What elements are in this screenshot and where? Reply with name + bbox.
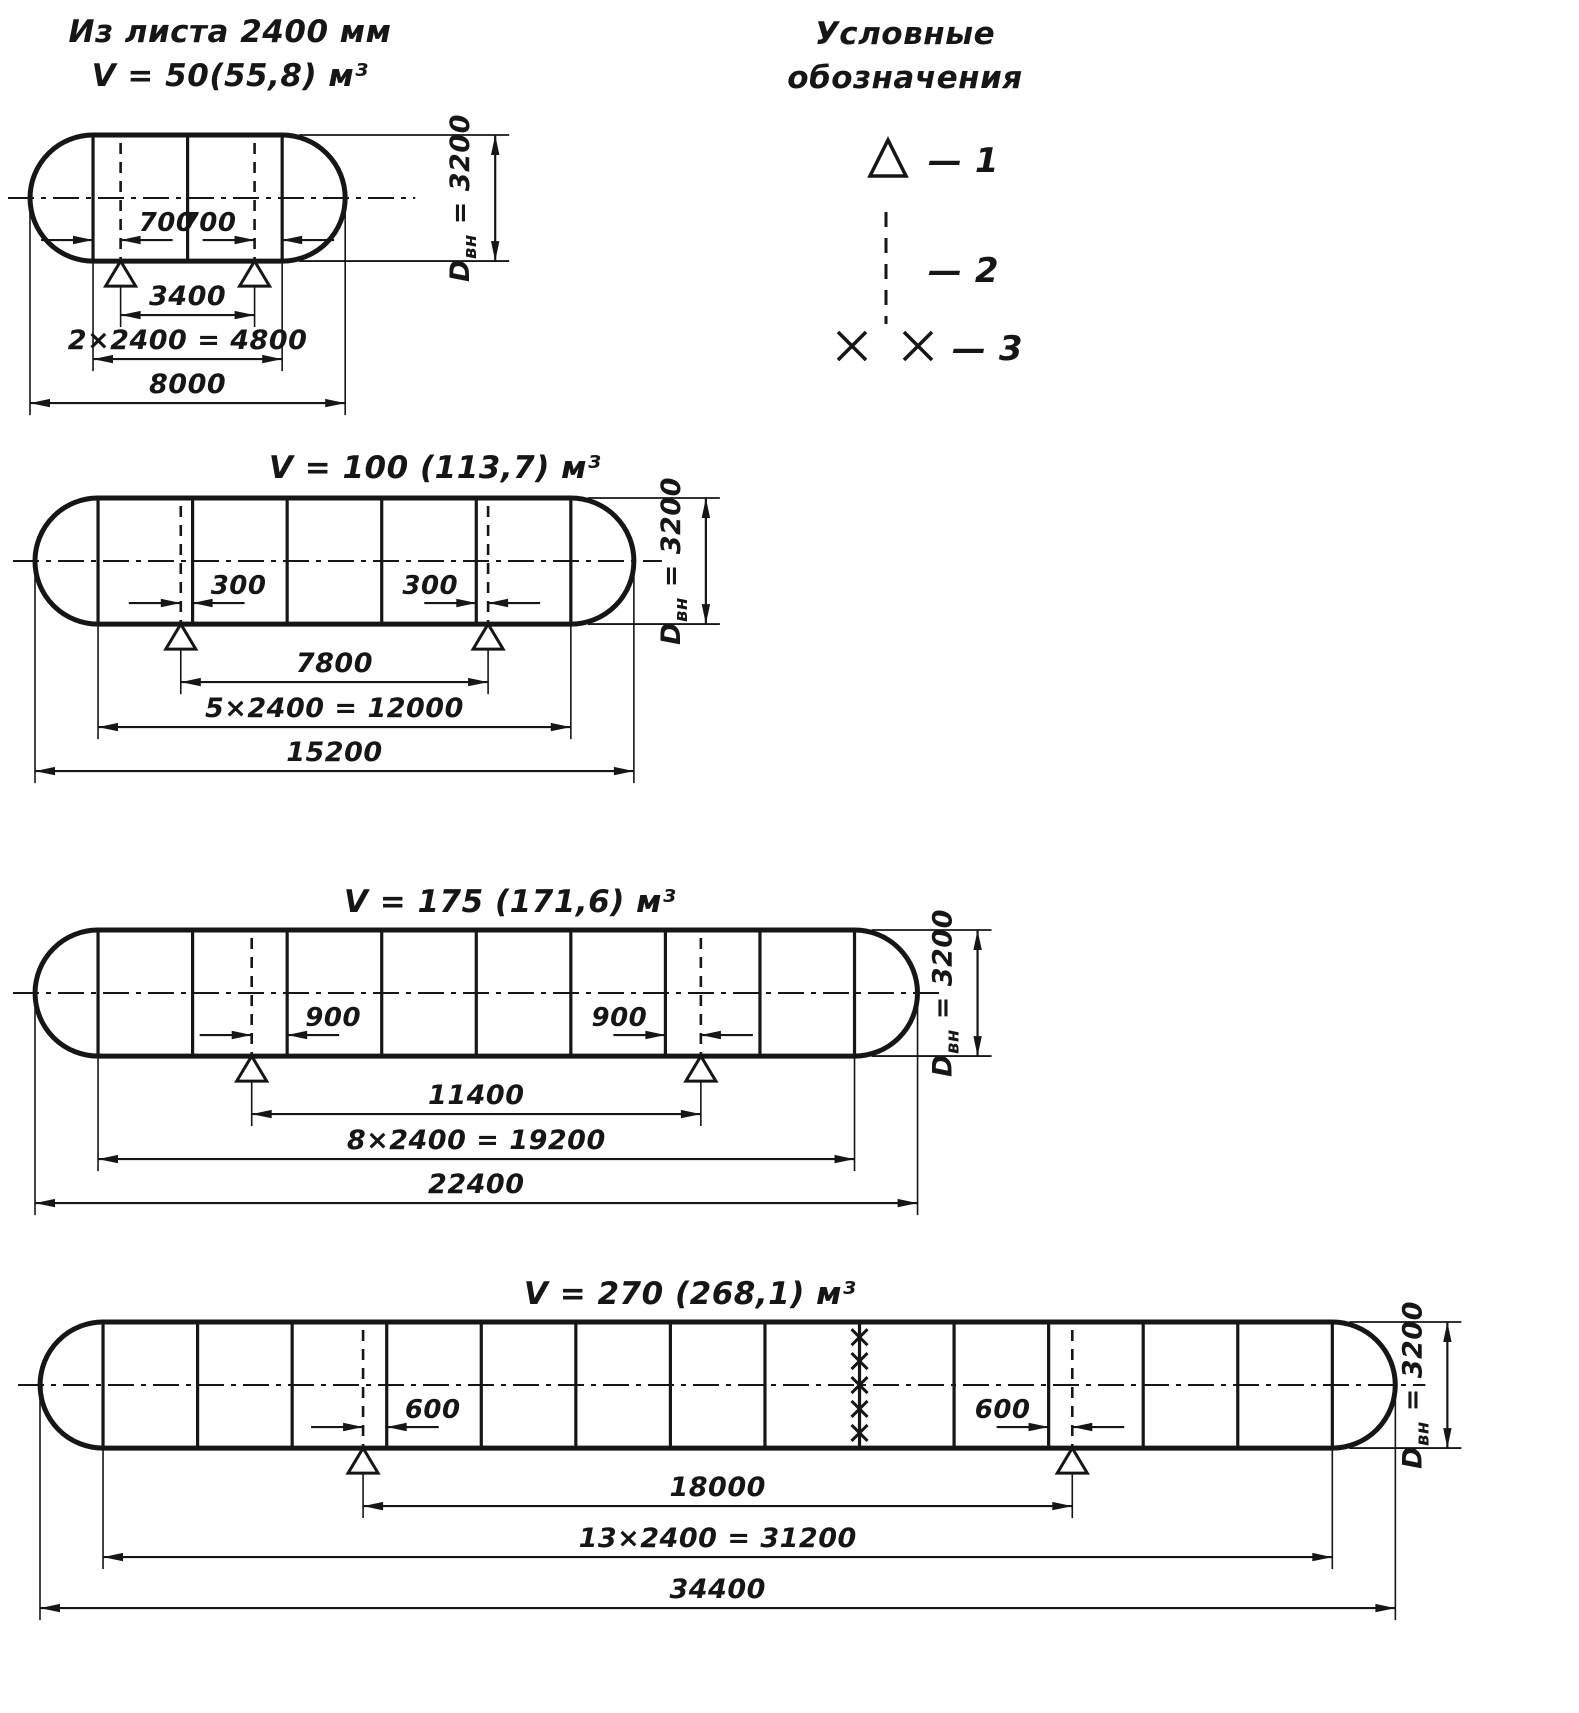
tank-title: V = 100 (113,7) м³: [269, 450, 601, 486]
diameter-label: Dвн = 3200: [445, 114, 481, 282]
dim-arrow: [252, 1110, 272, 1118]
support-triangle-icon: [473, 624, 503, 649]
dim-arrow: [702, 604, 710, 624]
dim-arrow: [701, 1031, 721, 1039]
dim-arrow: [1029, 1423, 1049, 1431]
dim-arrow: [35, 1199, 55, 1207]
dim-arrow: [1443, 1322, 1451, 1342]
legend: Условныеобозначения— 1— 2— 3: [787, 16, 1023, 369]
legend-item-1: — 1: [870, 140, 999, 181]
dim-arrow: [488, 599, 508, 607]
legend-item-3: — 3: [838, 329, 1023, 369]
dim-arrow: [1312, 1553, 1332, 1561]
dim-arrow: [98, 723, 118, 731]
dim-arrow: [73, 236, 93, 244]
dim-arrow: [161, 599, 181, 607]
dim-arrow: [973, 930, 981, 950]
support-triangle-icon: [1057, 1448, 1087, 1473]
dim-arrow: [491, 135, 499, 155]
offset-dim-label: 600: [975, 1395, 1031, 1425]
dim-arrow: [262, 355, 282, 363]
dim-arrow: [898, 1199, 918, 1207]
dim-arrow: [645, 1031, 665, 1039]
offset-dim-label: 900: [592, 1003, 648, 1033]
tank-1-drawing: Из листа 2400 ммV = 50(55,8) м³700700340…: [8, 14, 509, 415]
support-triangle-icon: [106, 261, 136, 286]
dim-arrow: [30, 399, 50, 407]
tank-title: V = 50(55,8) м³: [92, 58, 369, 94]
offset-dim-label: 300: [211, 571, 267, 601]
dim-arrow: [456, 599, 476, 607]
tank-title: V = 270 (268,1) м³: [524, 1276, 856, 1312]
legend-title: обозначения: [787, 60, 1022, 96]
technical-drawing-canvas: Условныеобозначения— 1— 2— 3Из листа 240…: [0, 0, 1579, 1713]
dim-arrow: [363, 1502, 383, 1510]
legend-item-label: — 3: [952, 329, 1023, 369]
tank-4-drawing: V = 270 (268,1) м³6006001800013×2400 = 3…: [18, 1276, 1461, 1620]
dim-arrow: [35, 767, 55, 775]
dim-arrow: [1375, 1604, 1395, 1612]
tank-3-drawing: V = 175 (171,6) м³900900114008×2400 = 19…: [13, 884, 992, 1215]
dim-arrow: [491, 241, 499, 261]
dim-arrow: [232, 1031, 252, 1039]
offset-dim-label: 300: [402, 571, 458, 601]
dim-arrow: [835, 1155, 855, 1163]
support-triangle-icon: [348, 1448, 378, 1473]
offset-dim-label: 900: [305, 1003, 361, 1033]
dim-arrow: [702, 498, 710, 518]
span-dim-label: 7800: [296, 648, 373, 679]
dim-arrow: [193, 599, 213, 607]
support-triangle-icon: [237, 1056, 267, 1081]
span-dim-label: 3400: [149, 281, 226, 312]
tank-title: Из листа 2400 мм: [69, 14, 392, 50]
total-dim-label: 22400: [428, 1169, 524, 1200]
dim-arrow: [235, 236, 255, 244]
shell-dim-label: 2×2400 = 4800: [68, 325, 308, 356]
dim-arrow: [973, 1036, 981, 1056]
diameter-label: Dвн = 3200: [656, 477, 692, 645]
shell-dim-label: 13×2400 = 31200: [579, 1523, 857, 1554]
total-dim-label: 8000: [149, 369, 226, 400]
support-triangle-icon: [870, 140, 906, 176]
legend-item-2: — 2: [886, 212, 999, 324]
dim-arrow: [40, 1604, 60, 1612]
tank-title: V = 175 (171,6) м³: [344, 884, 676, 920]
offset-dim-label: 700: [181, 208, 237, 238]
diameter-label: Dвн = 3200: [928, 909, 964, 1077]
dim-arrow: [614, 767, 634, 775]
dim-arrow: [551, 723, 571, 731]
dim-arrow: [181, 678, 201, 686]
total-dim-label: 15200: [286, 737, 382, 768]
dim-arrow: [343, 1423, 363, 1431]
support-triangle-icon: [166, 624, 196, 649]
dim-arrow: [681, 1110, 701, 1118]
offset-dim-label: 600: [405, 1395, 461, 1425]
dim-arrow: [121, 311, 141, 319]
legend-item-label: — 2: [928, 251, 999, 291]
dim-arrow: [235, 311, 255, 319]
dim-arrow: [1052, 1502, 1072, 1510]
span-dim-label: 11400: [428, 1080, 524, 1111]
drawing-page: Условныеобозначения— 1— 2— 3Из листа 240…: [0, 0, 1579, 1713]
dim-arrow: [103, 1553, 123, 1561]
dim-arrow: [287, 1031, 307, 1039]
legend-title: Условные: [815, 16, 995, 52]
shell-dim-label: 8×2400 = 19200: [347, 1125, 606, 1156]
dim-arrow: [468, 678, 488, 686]
diameter-label: Dвн = 3200: [1397, 1301, 1433, 1469]
dim-arrow: [93, 355, 113, 363]
dim-arrow: [121, 236, 141, 244]
dim-arrow: [387, 1423, 407, 1431]
legend-item-label: — 1: [928, 141, 999, 181]
dim-arrow: [1443, 1428, 1451, 1448]
tank-2-drawing: V = 100 (113,7) м³30030078005×2400 = 120…: [13, 450, 720, 783]
dim-arrow: [282, 236, 302, 244]
dim-arrow: [325, 399, 345, 407]
total-dim-label: 34400: [669, 1574, 765, 1605]
support-triangle-icon: [686, 1056, 716, 1081]
dim-arrow: [1072, 1423, 1092, 1431]
dim-arrow: [98, 1155, 118, 1163]
shell-dim-label: 5×2400 = 12000: [205, 693, 464, 724]
support-triangle-icon: [240, 261, 270, 286]
span-dim-label: 18000: [669, 1472, 765, 1503]
